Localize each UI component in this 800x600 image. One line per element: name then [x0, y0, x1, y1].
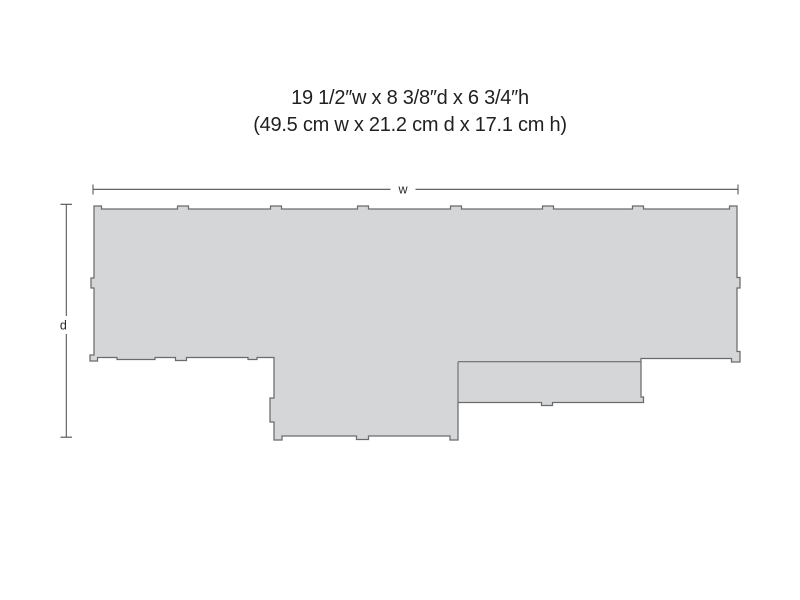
footprint-drawing: w d [0, 0, 800, 600]
depth-dimension-label: d [60, 319, 67, 333]
depth-dimension-line: d [60, 204, 72, 437]
width-dimension-line: w [93, 183, 738, 197]
footprint-diagram-page: 19 1/2″w x 8 3/8″d x 6 3/4″h (49.5 cm w … [0, 0, 800, 600]
footprint-shape [90, 206, 740, 440]
width-dimension-label: w [397, 183, 408, 197]
